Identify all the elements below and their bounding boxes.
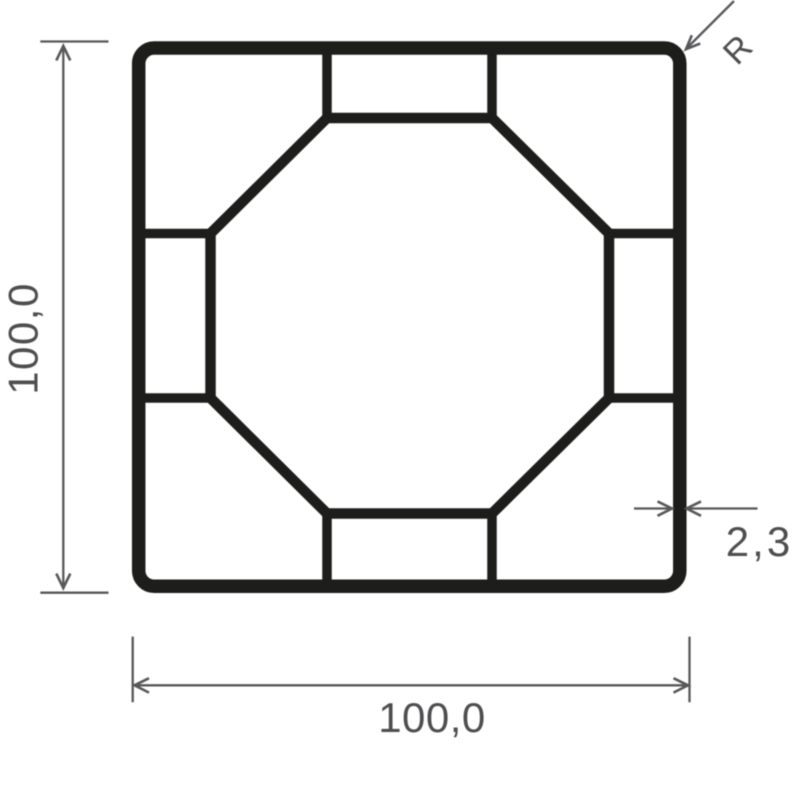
svg-text:100,0: 100,0	[0, 282, 47, 395]
svg-text:2,3: 2,3	[726, 518, 793, 565]
svg-text:100,0: 100,0	[378, 694, 486, 741]
